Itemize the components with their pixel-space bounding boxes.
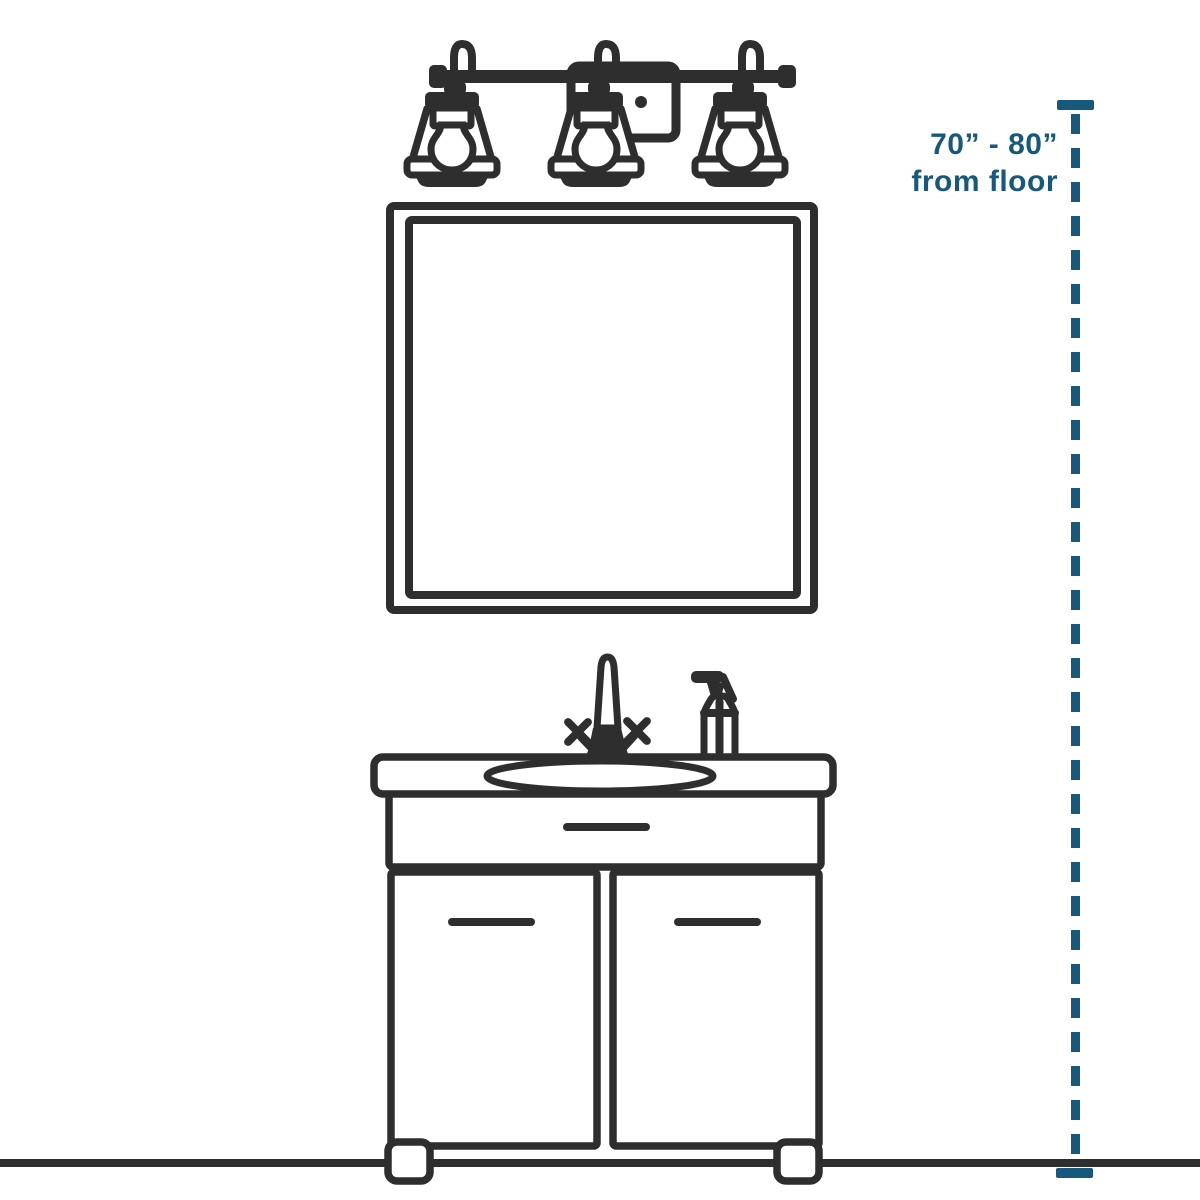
- sink-basin: [487, 761, 713, 791]
- faucet-spout: [597, 657, 618, 728]
- fixture-mount-screw: [635, 96, 647, 108]
- diagram-canvas: 70” - 80” from floor: [0, 0, 1200, 1200]
- soap-dispenser-icon: [691, 671, 735, 760]
- cabinet-foot-left: [388, 1142, 430, 1181]
- measurement-line: [1056, 100, 1094, 1178]
- mirror-inner-frame: [409, 220, 797, 595]
- lamp-left-icon: [407, 44, 497, 187]
- mirror-icon: [390, 206, 814, 610]
- fixture-bar-right-cap: [778, 65, 796, 88]
- dimension-reference-text: from floor: [911, 163, 1058, 200]
- fixture-bar-left-cap: [429, 65, 447, 88]
- fixture-bar: [430, 70, 796, 83]
- cabinet-foot-right: [777, 1142, 819, 1181]
- dimension-label: 70” - 80” from floor: [911, 126, 1058, 200]
- dimension-range-text: 70” - 80”: [911, 126, 1058, 163]
- measurement-bottom-cap: [1056, 1168, 1093, 1178]
- vanity-cabinet-icon: [374, 757, 833, 1146]
- vanity-light-icon: [407, 44, 796, 187]
- cabinet-door-right: [613, 872, 819, 1146]
- lamp-right-icon: [695, 44, 785, 187]
- cabinet-door-left: [391, 872, 597, 1146]
- measurement-top-cap: [1057, 100, 1094, 110]
- faucet-icon: [558, 657, 657, 762]
